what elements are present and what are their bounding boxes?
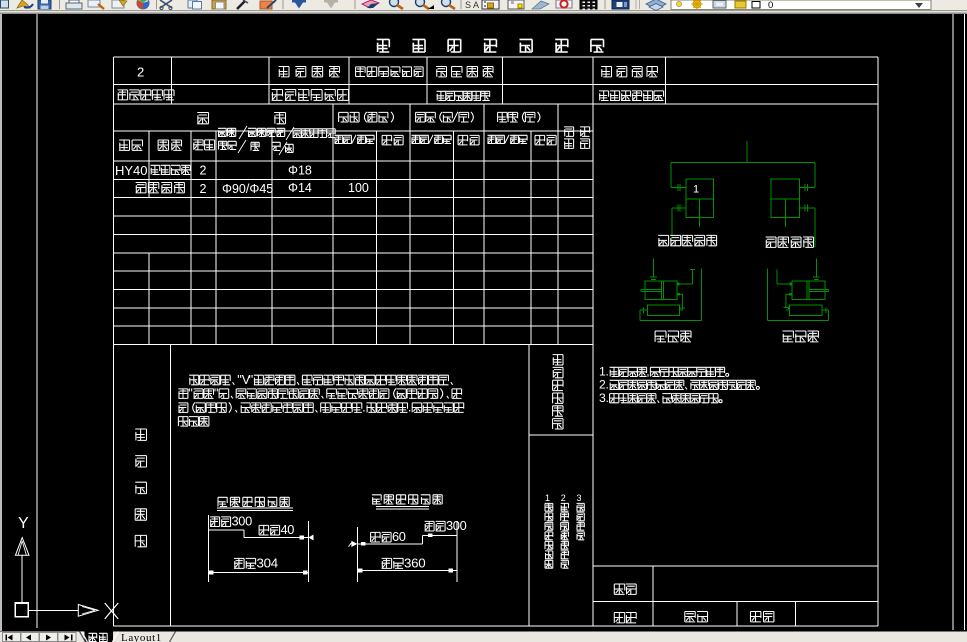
svg-text:0: 0 — [460, 518, 467, 533]
svg-text:Y: Y — [18, 515, 29, 532]
svg-text:Φ14: Φ14 — [288, 181, 312, 195]
svg-text:": " — [188, 386, 193, 401]
svg-text:0: 0 — [768, 0, 773, 11]
svg-text:100: 100 — [348, 181, 369, 195]
svg-text:.: . — [606, 365, 609, 379]
svg-text:S: S — [465, 0, 471, 10]
svg-text:0: 0 — [399, 529, 406, 544]
svg-text:3: 3 — [577, 493, 582, 503]
svg-text:Φ18: Φ18 — [288, 164, 312, 178]
svg-text:.: . — [606, 378, 609, 392]
svg-text:Φ90/Φ45: Φ90/Φ45 — [222, 182, 273, 196]
svg-text:.: . — [606, 391, 609, 405]
svg-text:0: 0 — [287, 522, 294, 537]
svg-text:2: 2 — [200, 164, 207, 178]
svg-text:2: 2 — [561, 493, 566, 503]
svg-text:": " — [249, 372, 254, 387]
svg-text:2: 2 — [200, 182, 207, 196]
svg-text:.: . — [362, 400, 366, 415]
svg-text:HY40: HY40 — [115, 163, 148, 178]
svg-text:.: . — [408, 400, 412, 415]
svg-text:1: 1 — [693, 184, 699, 196]
svg-text:1: 1 — [545, 493, 550, 503]
svg-text:,: , — [646, 365, 649, 379]
svg-text:0: 0 — [245, 514, 252, 529]
svg-text:A: A — [473, 0, 479, 10]
svg-text:": " — [214, 386, 219, 401]
svg-text:4: 4 — [271, 555, 278, 570]
svg-text:2: 2 — [137, 65, 144, 80]
svg-text:0: 0 — [418, 555, 425, 570]
svg-text:Layout1: Layout1 — [121, 632, 162, 642]
